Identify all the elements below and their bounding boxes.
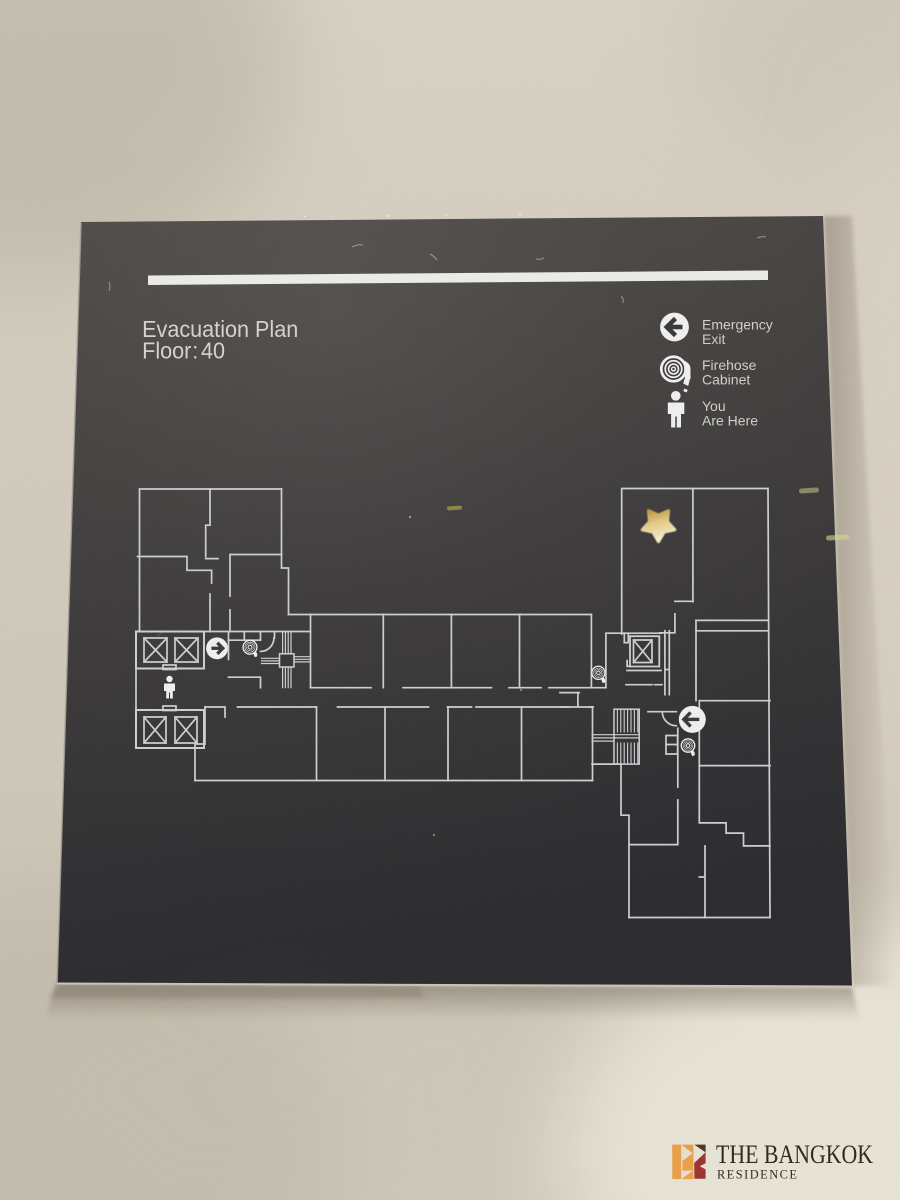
svg-text:THE BANGKOK: THE BANGKOK: [716, 1141, 874, 1169]
svg-text:RESIDENCE: RESIDENCE: [717, 1167, 798, 1181]
